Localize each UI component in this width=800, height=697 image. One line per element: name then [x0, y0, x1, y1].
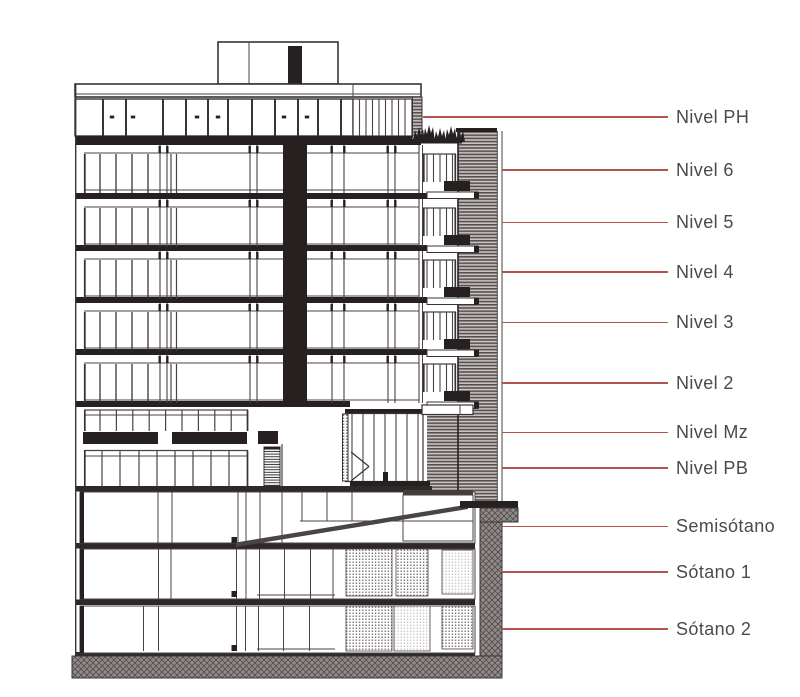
level-label-nivel-6: Nivel 6 — [676, 159, 734, 181]
level-label-sotano-1: Sótano 1 — [676, 561, 751, 583]
leader-line-nivel-mz — [502, 432, 668, 434]
level-label-sotano-2: Sótano 2 — [676, 618, 751, 640]
building-section-figure: Nivel PH Nivel 6 Nivel 5 Nivel 4 Nivel 3… — [0, 0, 800, 697]
leader-line-nivel-ph — [423, 116, 668, 118]
leader-line-sotano-1 — [502, 571, 668, 573]
level-label-nivel-mz: Nivel Mz — [676, 421, 748, 443]
level-label-nivel-2: Nivel 2 — [676, 372, 734, 394]
level-label-nivel-ph: Nivel PH — [676, 106, 749, 128]
level-label-semisotano: Semisótano — [676, 515, 775, 537]
leader-line-sotano-2 — [502, 628, 668, 630]
leader-line-nivel-pb — [502, 467, 668, 469]
level-label-nivel-3: Nivel 3 — [676, 311, 734, 333]
leader-line-nivel-2 — [502, 382, 668, 384]
level-label-nivel-4: Nivel 4 — [676, 261, 734, 283]
level-label-nivel-pb: Nivel PB — [676, 457, 748, 479]
level-label-nivel-5: Nivel 5 — [676, 211, 734, 233]
building-section-drawing — [0, 0, 800, 697]
leader-line-nivel-6 — [502, 169, 668, 171]
leader-line-nivel-5 — [502, 222, 668, 224]
leader-line-nivel-3 — [502, 322, 668, 324]
leader-line-semisotano — [502, 526, 668, 528]
leader-line-nivel-4 — [502, 271, 668, 273]
